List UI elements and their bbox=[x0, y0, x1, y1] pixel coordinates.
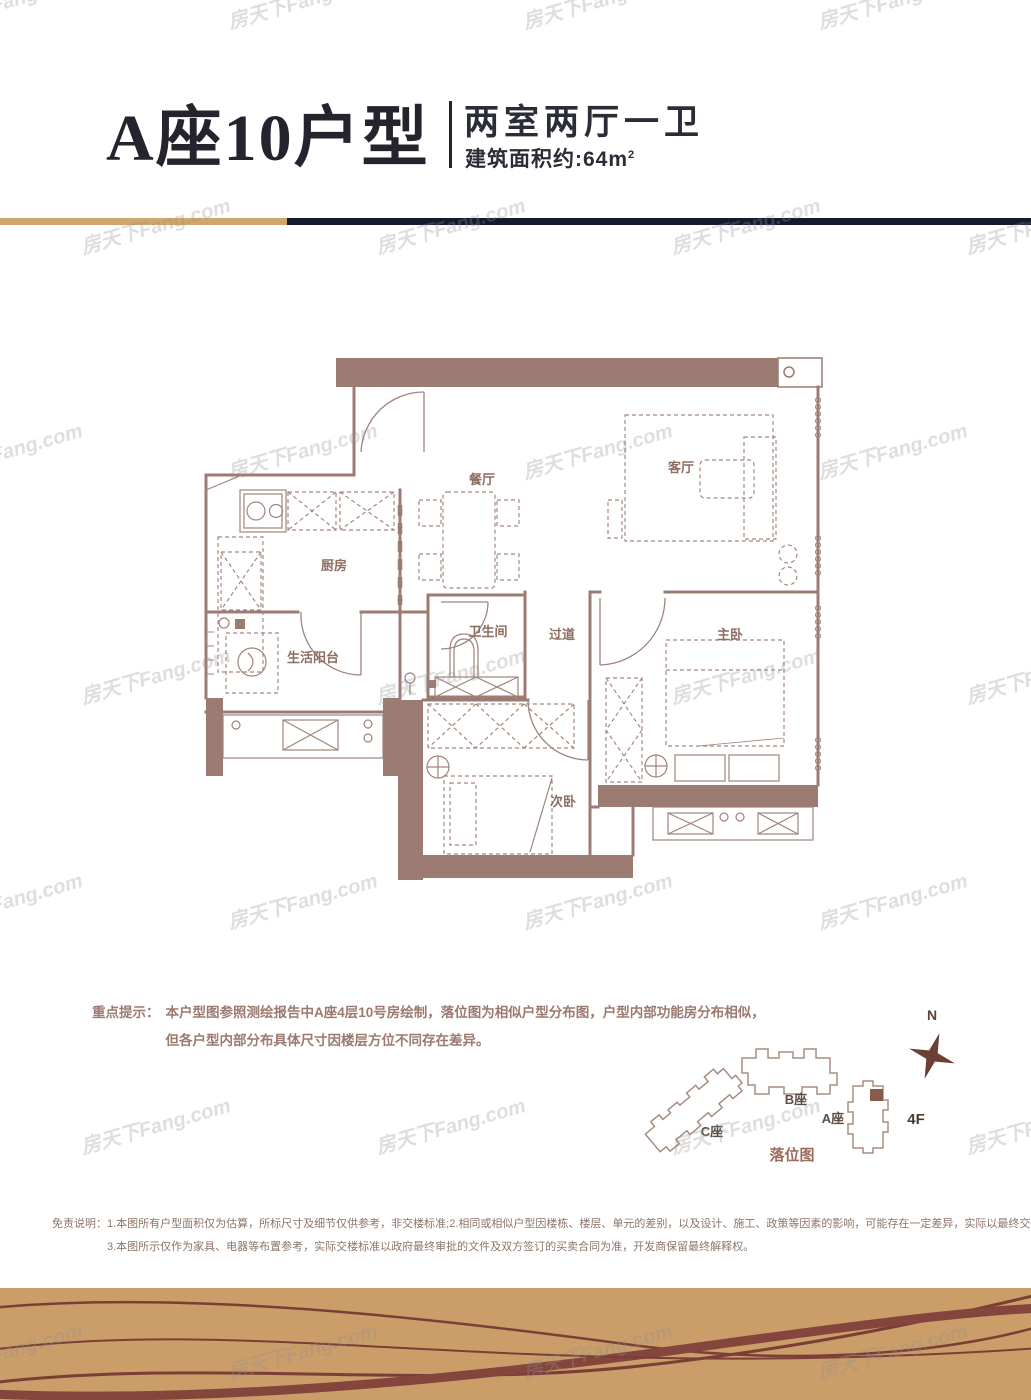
room-label-kitchen: 厨房 bbox=[321, 558, 347, 573]
highlighted-unit bbox=[870, 1089, 883, 1101]
room-label-master: 主卧 bbox=[717, 627, 743, 642]
bottom-decorative-band bbox=[0, 1288, 1031, 1400]
compass-star-icon bbox=[902, 1026, 962, 1086]
compass-north-label: N bbox=[927, 1007, 937, 1023]
building-a-label: A座 bbox=[822, 1111, 844, 1126]
building-b-label: B座 bbox=[785, 1092, 807, 1107]
rule-navy-segment bbox=[287, 218, 1031, 225]
disclaimer-line2: 3.本图所示仅作为家具、电器等布置参考，实际交楼标准以政府最终审批的文件及双方签… bbox=[107, 1236, 1031, 1259]
compass: N bbox=[902, 1007, 962, 1086]
page-title: A座10户型 bbox=[106, 84, 430, 180]
disclaimer: 免责说明： 1.本图所有户型面积仅为估算，所标尺寸及细节仅供参考，非交楼标准;2… bbox=[52, 1213, 1031, 1259]
building-c-outline bbox=[641, 1061, 745, 1157]
watermark-text: 房天下Fang.com bbox=[224, 0, 380, 35]
notice-label: 重点提示： bbox=[92, 999, 160, 1054]
area-label: 建筑面积约:64m2 bbox=[465, 143, 635, 173]
doors bbox=[301, 392, 665, 760]
disclaimer-label: 免责说明： bbox=[52, 1213, 107, 1259]
header-rule bbox=[0, 218, 1031, 225]
disclaimer-body: 1.本图所有户型面积仅为估算，所标尺寸及细节仅供参考，非交楼标准;2.相同或相似… bbox=[107, 1213, 1031, 1259]
floor-label: 4F bbox=[907, 1111, 925, 1128]
room-label-living: 客厅 bbox=[668, 460, 694, 475]
room-label-balcony: 生活阳台 bbox=[287, 650, 339, 665]
locator-caption: 落位图 bbox=[769, 1146, 814, 1164]
rule-gold-segment bbox=[0, 218, 287, 225]
watermark-text: 房天下Fang.com bbox=[0, 0, 85, 35]
floorplan-drawing: 餐厅 客厅 厨房 生活阳台 卫生间 过道 主卧 次卧 bbox=[188, 340, 848, 910]
watermark-text: 房天下Fang.com bbox=[519, 0, 675, 35]
layout-subtitle: 两室两厅一卫 bbox=[464, 94, 704, 145]
site-locator-diagram: N B座 C座 A座 4F 落位图 bbox=[620, 1000, 980, 1175]
building-c-label: C座 bbox=[701, 1124, 723, 1139]
room-label-corridor: 过道 bbox=[549, 627, 575, 642]
watermark-text: 房天下Fang.com bbox=[814, 0, 970, 35]
watermark-text: 房天下Fang.com bbox=[0, 414, 85, 484]
disclaimer-line1: 1.本图所有户型面积仅为估算，所标尺寸及细节仅供参考，非交楼标准;2.相同或相似… bbox=[107, 1213, 1031, 1236]
thin-walls bbox=[206, 387, 818, 855]
floorplan-page: A座10户型 两室两厅一卫 建筑面积约:64m2 bbox=[0, 0, 1031, 1400]
building-b-outline bbox=[742, 1049, 837, 1094]
room-label-bathroom: 卫生间 bbox=[468, 624, 507, 639]
building-outlines bbox=[641, 1049, 888, 1156]
room-label-dining: 餐厅 bbox=[468, 472, 495, 487]
room-label-second: 次卧 bbox=[550, 794, 576, 809]
thick-walls bbox=[206, 358, 818, 880]
watermark-text: 房天下Fang.com bbox=[962, 639, 1031, 709]
locator-labels: B座 C座 A座 4F 落位图 bbox=[701, 1092, 925, 1164]
meter-box bbox=[778, 358, 822, 387]
watermark-text: 房天下Fang.com bbox=[372, 1089, 528, 1159]
title-divider bbox=[449, 101, 452, 168]
watermark-text: 房天下Fang.com bbox=[77, 1089, 233, 1159]
watermark-text: 房天下Fang.com bbox=[0, 864, 85, 934]
